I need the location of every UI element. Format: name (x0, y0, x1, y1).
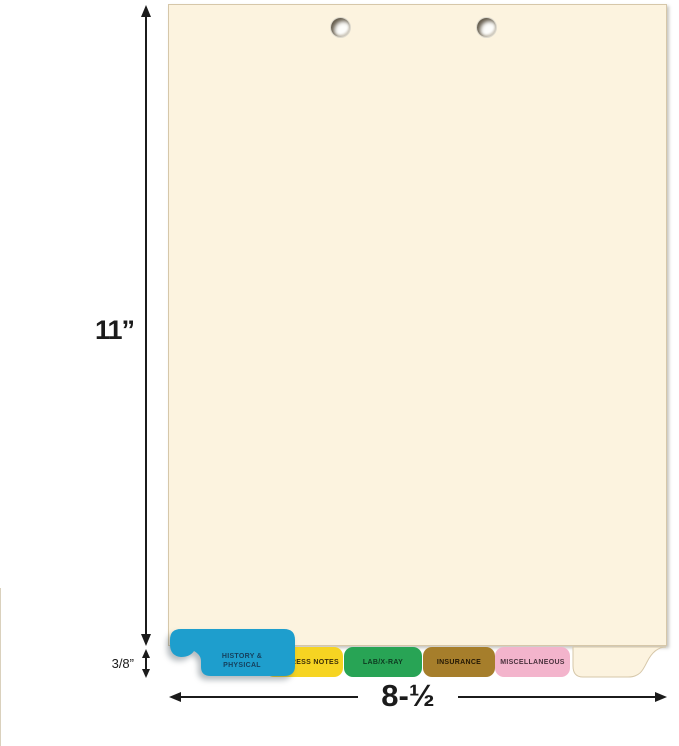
tab-insurance: INSURANCE (423, 647, 495, 677)
punch-hole-right (476, 17, 497, 38)
tab-height-dimension-label: 3/8” (68, 656, 134, 671)
tab-insurance-label: INSURANCE (437, 659, 481, 666)
tab-history-physical-label: HISTORY & PHYSICAL (196, 648, 288, 674)
punch-hole-left (330, 17, 351, 38)
left-edge-line (0, 588, 1, 746)
tab-height-dimension-arrow (142, 649, 150, 678)
height-dimension-label: 11” (50, 315, 134, 346)
divider-sheet (168, 4, 667, 646)
tab-blank (573, 647, 666, 677)
tab-history-physical-label-line2: PHYSICAL (223, 661, 261, 670)
product-image: PROGRESS NOTES LAB/X-RAY INSURANCE MISCE… (0, 0, 679, 746)
tab-history-physical-label-line1: HISTORY & (222, 652, 262, 661)
width-dimension-label: 8-½ (358, 679, 458, 713)
height-dimension-arrow (141, 5, 151, 646)
tab-miscellaneous: MISCELLANEOUS (495, 647, 570, 677)
tab-lab-xray-label: LAB/X-RAY (363, 659, 403, 666)
tab-lab-xray: LAB/X-RAY (344, 647, 422, 677)
tab-miscellaneous-label: MISCELLANEOUS (500, 659, 565, 666)
